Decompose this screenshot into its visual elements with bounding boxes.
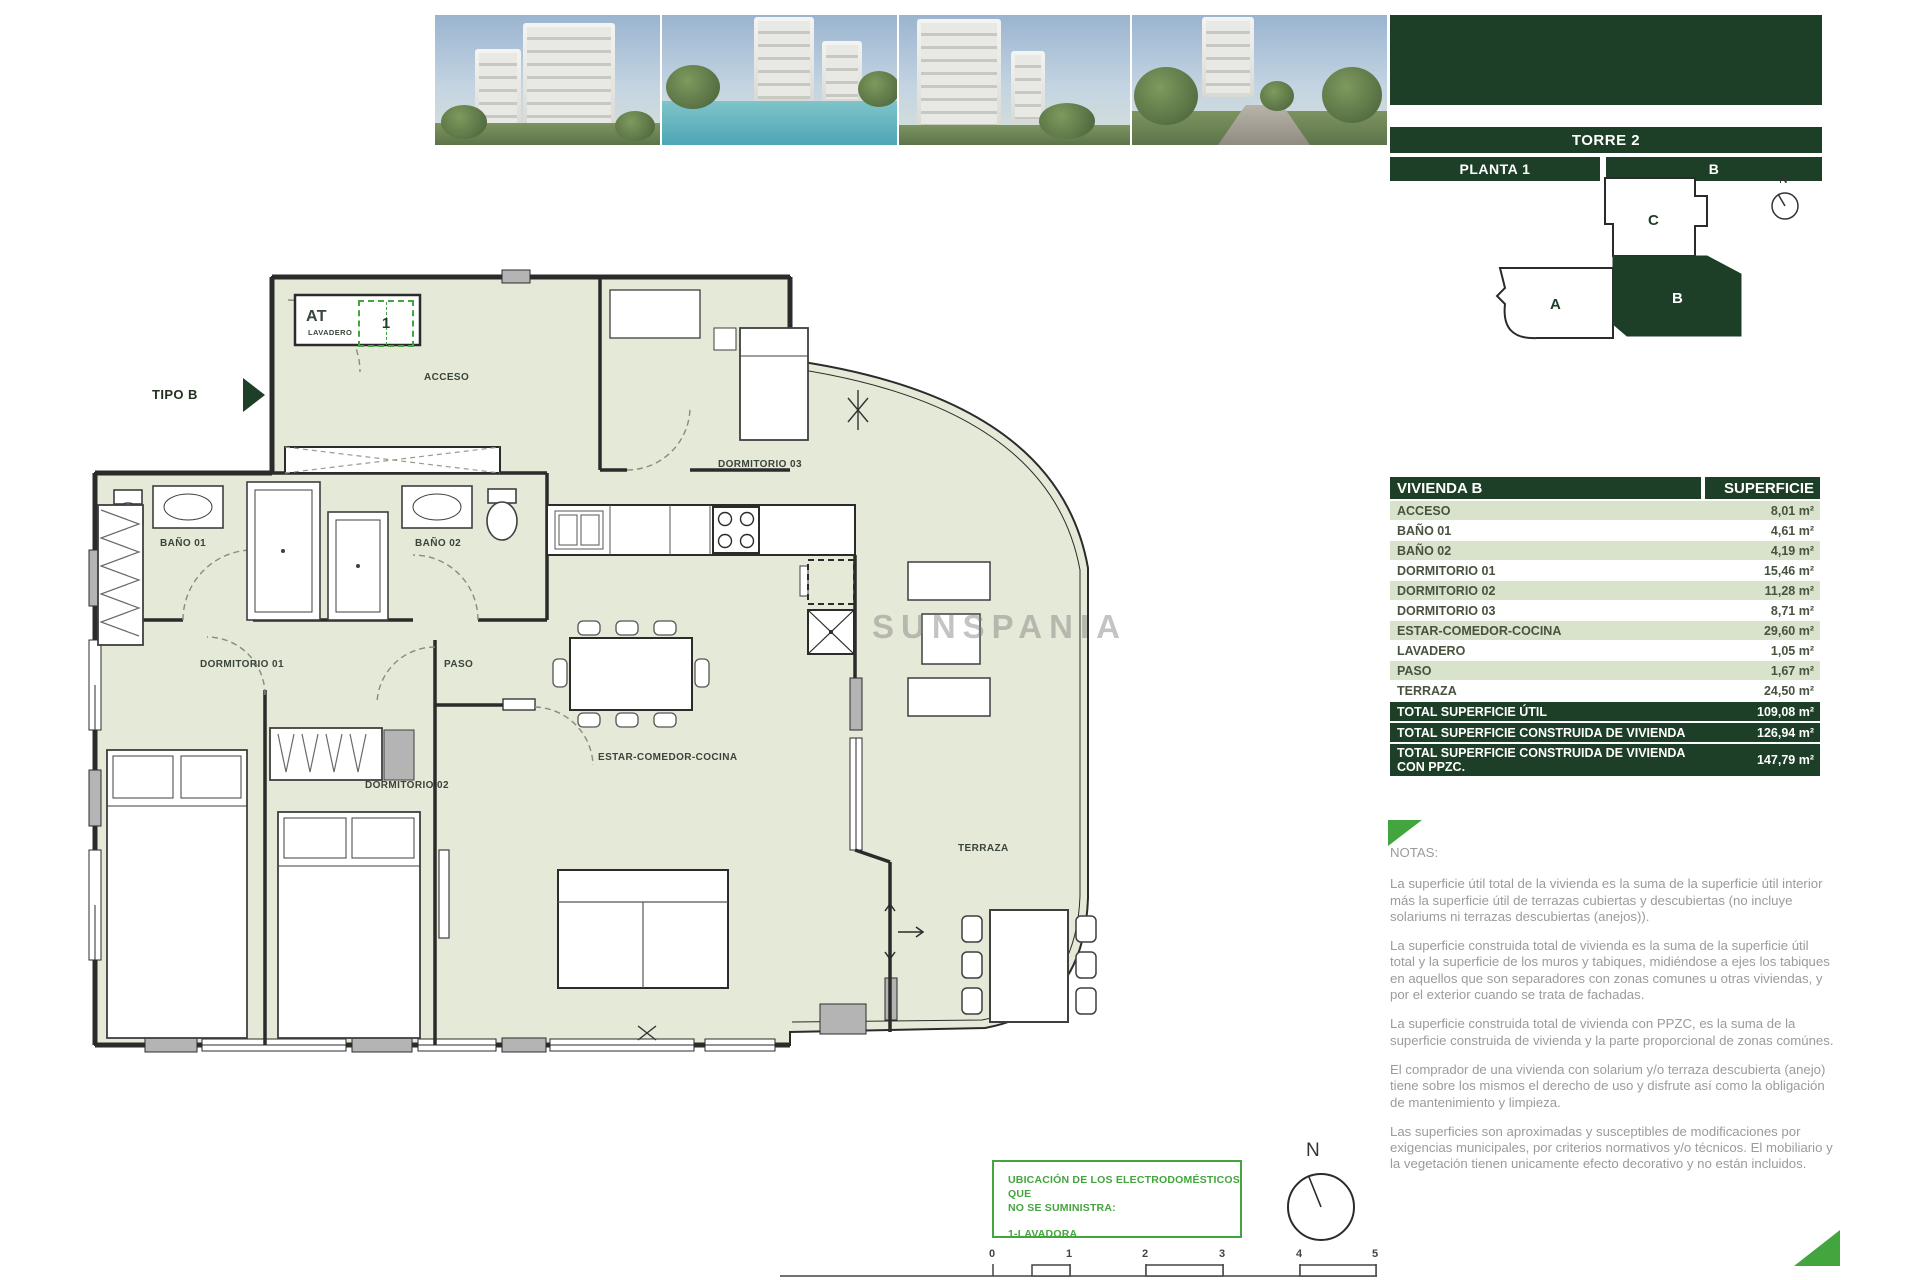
scale-tick: 5 <box>1372 1248 1378 1260</box>
table-row: DORMITORIO 0211,28 m² <box>1390 581 1820 600</box>
room-label-bano01: BAÑO 01 <box>160 538 206 549</box>
room-label-dorm03: DORMITORIO 03 <box>718 459 802 470</box>
notes-paragraph: La superficie construida total de vivien… <box>1390 938 1836 1003</box>
room-label-estar: ESTAR-COMEDOR-COCINA <box>598 752 737 763</box>
brochure-page: TORRE 2 PLANTA 1 B C A B N VIVIENDA B SU… <box>0 0 1920 1280</box>
table-total-construida: TOTAL SUPERFICIE CONSTRUIDA DE VIVIENDA … <box>1390 723 1820 742</box>
room-label-dorm01: DORMITORIO 01 <box>200 659 284 670</box>
watermark-text: SUNSPANIA <box>872 608 1127 646</box>
table-row: BAÑO 024,19 m² <box>1390 541 1820 560</box>
appliance-marker-box: 1 <box>358 300 414 347</box>
room-label-dorm02: DORMITORIO 02 <box>365 780 449 791</box>
table-col-superficie: SUPERFICIE <box>1705 477 1820 499</box>
scale-tick: 2 <box>1142 1248 1148 1260</box>
table-row: LAVADERO1,05 m² <box>1390 641 1820 660</box>
notes-paragraph: El comprador de una vivienda con solariu… <box>1390 1062 1836 1111</box>
appliance-note-line: NO SE SUMINISTRA: <box>1008 1201 1240 1215</box>
room-label-at: AT <box>306 308 327 326</box>
table-total-util: TOTAL SUPERFICIE ÚTIL 109,08 m² <box>1390 702 1820 721</box>
room-label-acceso: ACCESO <box>424 372 469 383</box>
surface-table: VIVIENDA B SUPERFICIE ACCESO8,01 m² BAÑO… <box>1390 477 1820 776</box>
keyplan-drawing <box>1455 168 1825 368</box>
table-row: DORMITORIO 0115,46 m² <box>1390 561 1820 580</box>
scale-tick: 0 <box>989 1248 995 1260</box>
scale-bar <box>780 1244 1380 1280</box>
room-label-bano02: BAÑO 02 <box>415 538 461 549</box>
appliance-note-box: UBICACIÓN DE LOS ELECTRODOMÉSTICOS QUE N… <box>992 1160 1242 1238</box>
tipo-arrow-icon <box>243 378 265 412</box>
room-label-paso: PASO <box>444 659 473 670</box>
scale-tick: 4 <box>1296 1248 1302 1260</box>
room-label-lavadero: LAVADERO <box>308 328 352 337</box>
torre-label: TORRE 2 <box>1572 132 1640 149</box>
torre-title-bar: TORRE 2 <box>1390 127 1822 153</box>
scale-tick: 1 <box>1066 1248 1072 1260</box>
appliance-note-line: 1-LAVADORA <box>1008 1227 1240 1241</box>
notes-paragraph: Las superficies son aproximadas y suscep… <box>1390 1124 1836 1173</box>
photo-building-1 <box>435 15 660 145</box>
appliance-marker-number: 1 <box>382 315 390 332</box>
notes-paragraph: La superficie construida total de vivien… <box>1390 1016 1836 1049</box>
keyplan-section-b: B <box>1672 290 1683 307</box>
notes-triangle-icon <box>1388 820 1422 846</box>
table-row: TERRAZA24,50 m² <box>1390 681 1820 700</box>
notes-title: NOTAS: <box>1390 845 1836 861</box>
table-total-ppzc: TOTAL SUPERFICIE CONSTRUIDA DE VIVIENDA … <box>1390 744 1820 776</box>
notes-section: NOTAS: La superficie útil total de la vi… <box>1390 845 1836 1186</box>
keyplan-section-c: C <box>1648 212 1659 229</box>
scale-tick: 3 <box>1219 1248 1225 1260</box>
floorplan-drawing <box>50 210 1150 1090</box>
appliance-note-line: UBICACIÓN DE LOS ELECTRODOMÉSTICOS QUE <box>1008 1173 1240 1201</box>
keyplan-section-a: A <box>1550 296 1561 313</box>
table-row: ESTAR-COMEDOR-COCINA29,60 m² <box>1390 621 1820 640</box>
table-row: ACCESO8,01 m² <box>1390 501 1820 520</box>
photo-building-2 <box>899 15 1130 145</box>
corner-triangle-icon <box>1794 1230 1840 1266</box>
table-row: DORMITORIO 038,71 m² <box>1390 601 1820 620</box>
photo-pool <box>662 15 897 145</box>
tipo-label: TIPO B <box>152 387 198 402</box>
keyplan-compass-icon: N <box>1779 172 1788 186</box>
notes-paragraph: La superficie útil total de la vivienda … <box>1390 876 1836 925</box>
room-label-terraza: TERRAZA <box>958 843 1009 854</box>
surface-table-header: VIVIENDA B SUPERFICIE <box>1390 477 1820 499</box>
table-row: PASO1,67 m² <box>1390 661 1820 680</box>
header-green-block <box>1390 15 1822 105</box>
table-title: VIVIENDA B <box>1390 477 1701 499</box>
table-row: BAÑO 014,61 m² <box>1390 521 1820 540</box>
photo-park-walkway <box>1132 15 1387 145</box>
compass-icon <box>1275 1135 1370 1250</box>
